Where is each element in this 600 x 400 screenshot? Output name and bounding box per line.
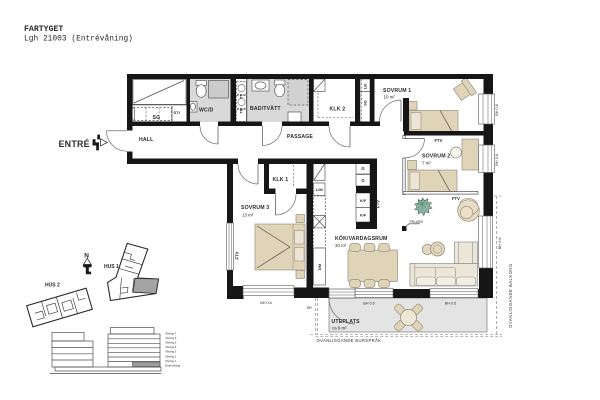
svg-text:PELARE: PELARE [410, 220, 424, 224]
svg-text:G: G [361, 178, 364, 183]
svg-text:SOVRUM 2: SOVRUM 2 [422, 154, 450, 160]
svg-text:13 m²: 13 m² [242, 213, 254, 218]
svg-text:Våning 6: Våning 6 [165, 336, 176, 340]
svg-text:OVANLIGGANDE BURSPRÅK: OVANLIGGANDE BURSPRÅK [317, 338, 382, 343]
svg-text:K/F: K/F [360, 199, 367, 203]
svg-text:LB: LB [362, 84, 367, 89]
svg-text:HUS 1: HUS 1 [104, 264, 119, 270]
svg-text:STI: STI [174, 110, 180, 115]
svg-text:TM: TM [240, 108, 244, 113]
svg-text:WC/D: WC/D [199, 108, 214, 114]
svg-text:BAD/TVÄTT: BAD/TVÄTT [250, 105, 281, 112]
svg-text:BH 0.6: BH 0.6 [495, 104, 499, 116]
svg-text:FTV: FTV [452, 196, 460, 201]
svg-text:FTV: FTV [376, 200, 381, 208]
svg-text:K/F: K/F [360, 214, 367, 218]
svg-text:Våning 5: Våning 5 [165, 341, 176, 345]
svg-text:N: N [84, 253, 89, 260]
svg-text:SG: SG [362, 100, 367, 106]
svg-text:Våning 2: Våning 2 [165, 354, 176, 358]
svg-text:Entrévåning: Entrévåning [165, 364, 180, 368]
svg-text:SG: SG [153, 115, 161, 121]
svg-text:SR: SR [307, 306, 313, 310]
svg-text:KLK 1: KLK 1 [273, 177, 289, 183]
svg-text:HUS 2: HUS 2 [45, 283, 60, 289]
svg-text:SOVRUM 3: SOVRUM 3 [241, 205, 269, 211]
svg-text:HALL: HALL [139, 137, 154, 143]
svg-text:SOVRUM 1: SOVRUM 1 [383, 88, 411, 94]
svg-text:BH 0.6: BH 0.6 [260, 301, 272, 305]
svg-text:ENTRÉ: ENTRÉ [59, 139, 90, 149]
svg-text:KLK 2: KLK 2 [330, 107, 346, 113]
svg-text:10 m²: 10 m² [384, 95, 396, 100]
svg-text:Våning 7: Våning 7 [165, 331, 176, 335]
svg-text:G: G [361, 166, 364, 171]
svg-text:UTEPLATS: UTEPLATS [332, 319, 361, 325]
svg-text:L/M: L/M [316, 187, 324, 192]
svg-text:FARTYGET: FARTYGET [24, 25, 63, 34]
svg-text:30 m²: 30 m² [335, 243, 347, 248]
svg-text:PASSAGE: PASSAGE [287, 134, 313, 140]
svg-text:BH 0.6: BH 0.6 [363, 301, 375, 305]
svg-text:KÖK/VARDAGSRUM: KÖK/VARDAGSRUM [335, 235, 387, 242]
svg-text:TT: TT [240, 94, 244, 99]
svg-text:ca 9 m²: ca 9 m² [332, 326, 347, 331]
svg-text:DM: DM [317, 263, 322, 270]
svg-text:BH 0.6: BH 0.6 [498, 237, 502, 249]
svg-text:FTV: FTV [435, 138, 443, 143]
svg-text:Lgh 21003 (Entrévåning): Lgh 21003 (Entrévåning) [24, 34, 133, 43]
svg-text:OVANLIGGANDE BALKONG: OVANLIGGANDE BALKONG [508, 263, 513, 328]
svg-text:Våning 4: Våning 4 [165, 345, 176, 349]
svg-text:BH 0.6: BH 0.6 [445, 301, 457, 305]
svg-text:BH 0.6: BH 0.6 [495, 154, 499, 166]
svg-text:Våning 1: Våning 1 [165, 359, 176, 363]
svg-text:FTV: FTV [235, 251, 240, 259]
svg-text:7 m²: 7 m² [422, 161, 431, 166]
svg-text:Våning 3: Våning 3 [165, 350, 176, 354]
